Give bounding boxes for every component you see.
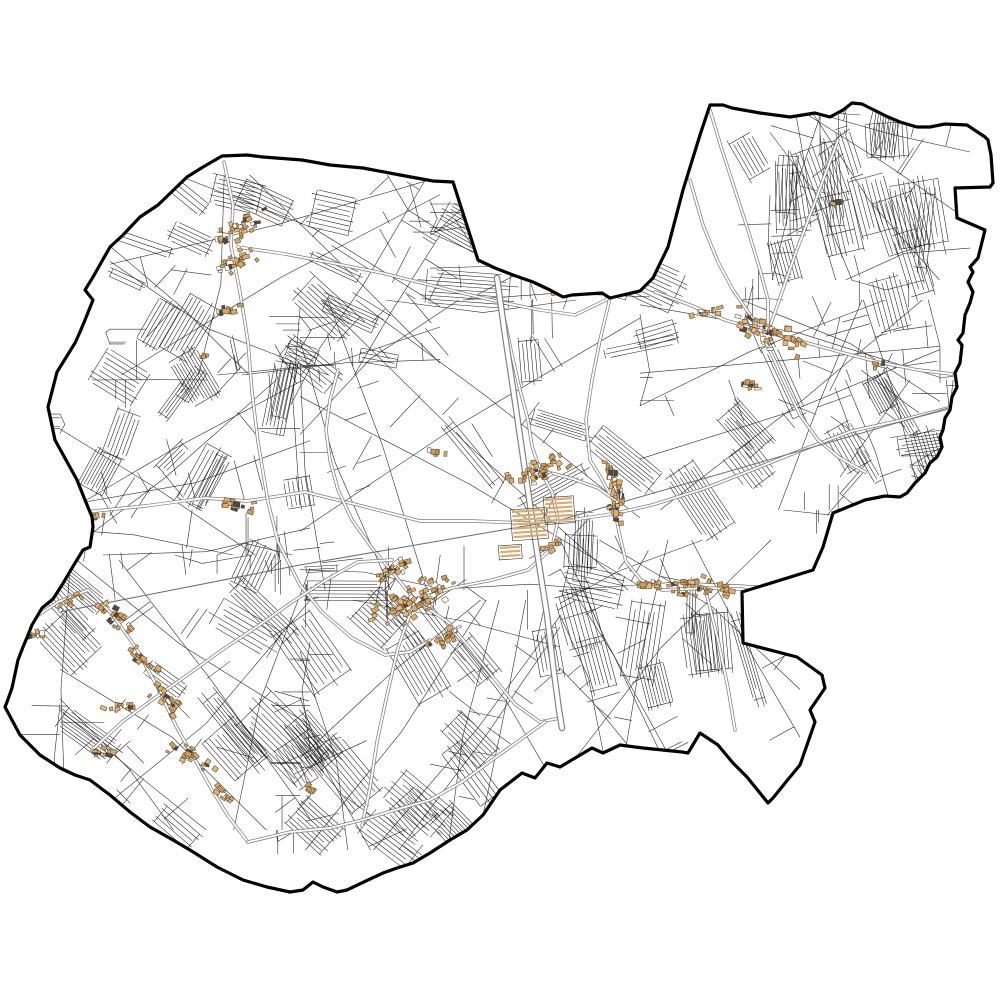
cadastral-map: [0, 0, 1000, 1000]
map-page: [0, 0, 1000, 1000]
cadastral-map-canvas: [0, 0, 1000, 1000]
